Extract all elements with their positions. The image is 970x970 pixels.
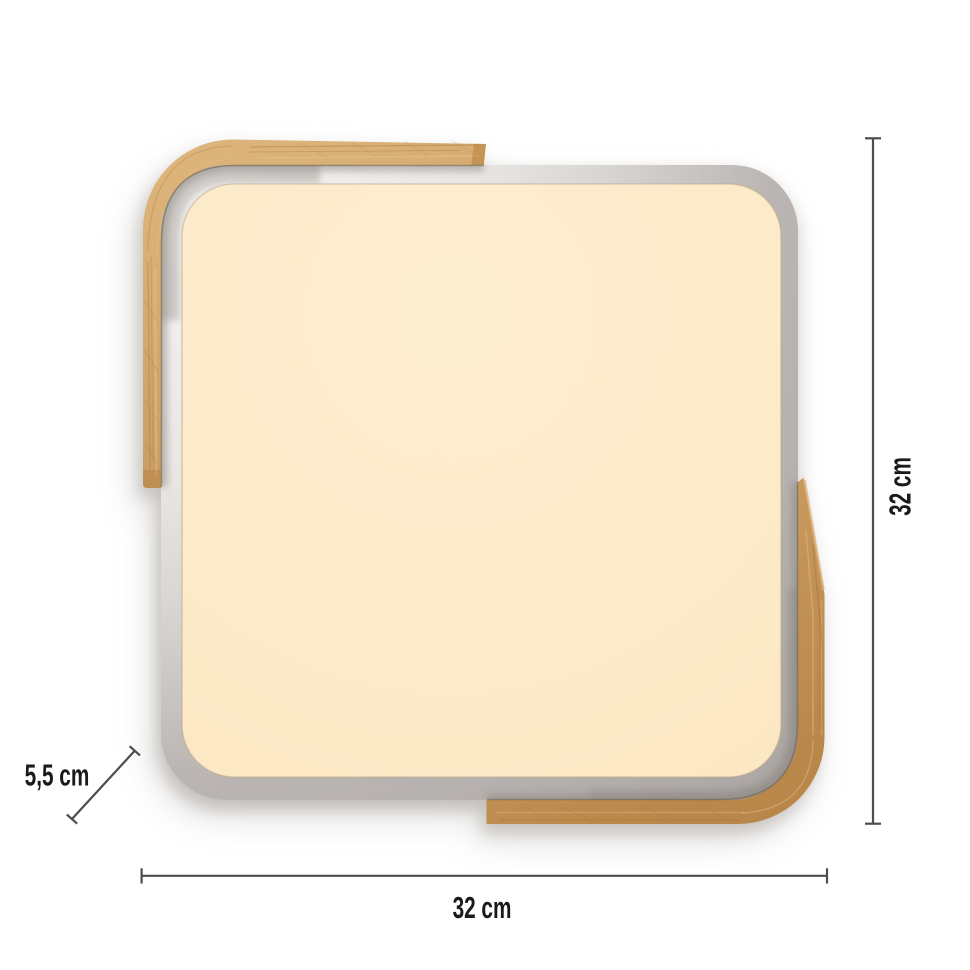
svg-text:5,5 cm: 5,5 cm: [25, 757, 90, 792]
svg-text:32 cm: 32 cm: [453, 890, 512, 925]
svg-text:32 cm: 32 cm: [882, 457, 917, 516]
